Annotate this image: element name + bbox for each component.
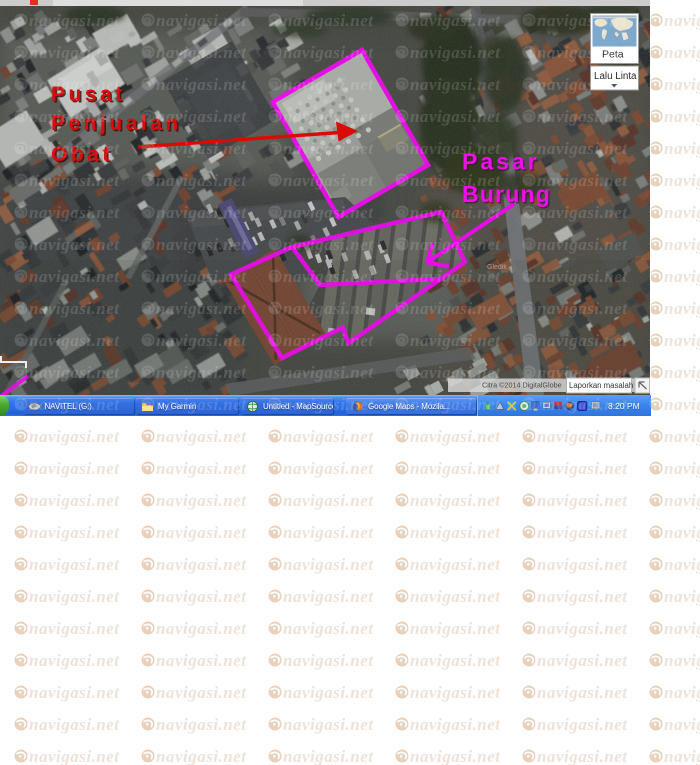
svg-text:Lalu Linta: Lalu Linta xyxy=(594,71,637,82)
svg-text:Citra ©2014 DigitalGlobe -: Citra ©2014 DigitalGlobe - xyxy=(482,381,569,390)
svg-text:Pasar: Pasar xyxy=(462,149,540,175)
svg-text:Laporkan masalah: Laporkan masalah xyxy=(569,381,633,390)
svg-text:Peta: Peta xyxy=(602,49,624,61)
svg-text:Burung: Burung xyxy=(462,181,551,207)
svg-text:Penjualan: Penjualan xyxy=(51,112,182,135)
svg-text:Pusat: Pusat xyxy=(51,83,126,106)
svg-text:Obat: Obat xyxy=(51,143,113,166)
